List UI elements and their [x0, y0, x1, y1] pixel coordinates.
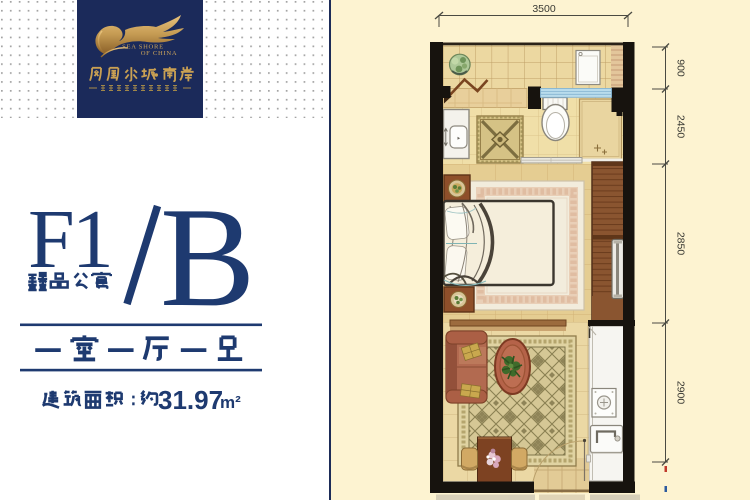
- svg-text:2450: 2450: [675, 115, 687, 139]
- svg-text:2850: 2850: [675, 232, 687, 256]
- svg-text:31.97: 31.97: [158, 385, 223, 415]
- svg-text:OF CHINA: OF CHINA: [141, 50, 178, 57]
- svg-text:B: B: [160, 178, 255, 336]
- svg-text:2900: 2900: [675, 381, 687, 405]
- svg-text:3500: 3500: [532, 3, 556, 15]
- svg-text:m²: m²: [220, 393, 241, 412]
- svg-text:900: 900: [675, 59, 687, 77]
